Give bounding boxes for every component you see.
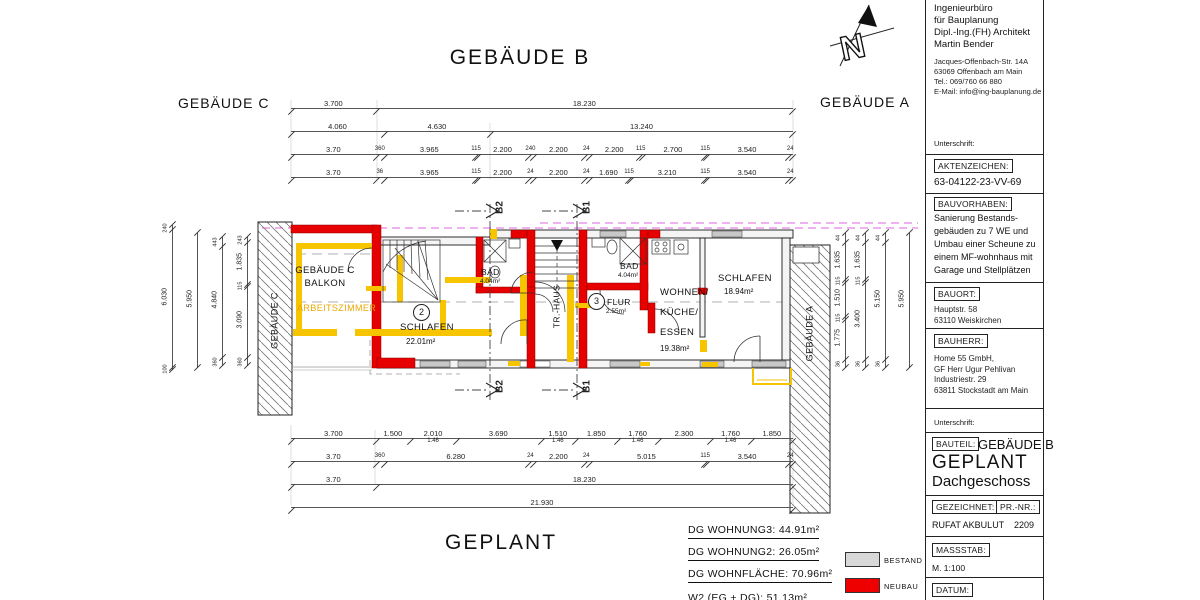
dim-segment: 360 bbox=[209, 358, 222, 366]
strip-label-gebaeude-c: GEBÄUDE C bbox=[269, 281, 282, 361]
divider bbox=[926, 577, 1043, 578]
dim-segment: 3.70 bbox=[291, 164, 376, 177]
text-line: für Bauplanung bbox=[934, 15, 1030, 27]
dim-segment: 6.280 bbox=[384, 448, 528, 461]
room-wohnen-line2: KÜCHE/ bbox=[660, 306, 698, 319]
divider bbox=[926, 536, 1043, 537]
text-line: Industriestr. 29 bbox=[934, 375, 1028, 386]
dim-row-bottom-3: 3.7018.230 bbox=[291, 471, 793, 485]
dim-segment: 3.540 bbox=[706, 164, 787, 177]
dim-segment: 5.950 bbox=[184, 233, 197, 368]
room-schlafen1: SCHLAFEN bbox=[718, 272, 772, 285]
balkon-label-line1: GEBÄUDE C bbox=[286, 264, 364, 277]
dim-segment: 24 bbox=[788, 141, 794, 154]
section-label-b2-top: B2 bbox=[495, 200, 506, 216]
dim-segment: 3.965 bbox=[384, 141, 475, 154]
divider bbox=[926, 495, 1043, 496]
bauvorhaben-text: Sanierung Bestands-gebäuden zu 7 WE undU… bbox=[934, 212, 1036, 277]
bauort-label: BAUORT: bbox=[934, 287, 980, 301]
dim-segment: 3.700 bbox=[291, 425, 376, 438]
dim-segment: 2.0101.46 bbox=[410, 425, 456, 438]
bauteil-value: GEBÄUDE B bbox=[978, 437, 1054, 452]
north-arrow-icon: N bbox=[830, 5, 894, 69]
room-schlafen1-area: 18.94m² bbox=[724, 287, 753, 296]
dim-row-bottom-4: 21.930 bbox=[291, 494, 793, 508]
massstab-label: MASSSTAB: bbox=[932, 543, 990, 557]
prnr-label: PR.-NR.: bbox=[996, 500, 1040, 514]
title-block: Ingenieurbürofür BauplanungDipl.-Ing.(FH… bbox=[925, 0, 1044, 600]
room-bad-right-area: 4.04m² bbox=[618, 272, 638, 279]
dim-segment: 3.70 bbox=[291, 448, 376, 461]
text-line: Garage und Stellplätzen bbox=[934, 264, 1036, 277]
text-line: Martin Bender bbox=[934, 39, 1030, 51]
room-wohnen-area: 19.38m² bbox=[660, 344, 689, 353]
dim-segment: 5.950 bbox=[896, 233, 909, 368]
room-trhaus: TR.-HAUS bbox=[551, 277, 564, 337]
dim-col-left-1: 2406.030100 bbox=[159, 225, 173, 370]
text-line: GF Herr Ugur Pehlivan bbox=[934, 365, 1028, 376]
signature-label: Unterschrift: bbox=[934, 139, 974, 148]
aktenzeichen-label: AKTENZEICHEN: bbox=[934, 159, 1013, 173]
text-line: gebäuden zu 7 WE und bbox=[934, 225, 1036, 238]
dim-segment: 360 bbox=[234, 358, 247, 366]
room-wohnen-line3: ESSEN bbox=[660, 326, 694, 339]
room-flur-area: 2.55m² bbox=[606, 308, 626, 315]
legend-neubau-swatch bbox=[845, 578, 880, 593]
dim-segment: 443 bbox=[209, 237, 222, 247]
text-line: 63069 Offenbach am Main bbox=[934, 67, 1041, 77]
dim-segment: 5.015 bbox=[589, 448, 704, 461]
dim-segment: 1.850 bbox=[575, 425, 617, 438]
dim-segment: 24 bbox=[788, 164, 794, 177]
dim-segment: 36 bbox=[872, 360, 885, 368]
dim-segment: 3.210 bbox=[630, 164, 703, 177]
gezeichnet-value: RUFAT AKBULUT bbox=[932, 520, 1004, 530]
stair-left-unit bbox=[383, 240, 440, 302]
dim-segment: 2.200 bbox=[589, 141, 639, 154]
level-name: Dachgeschoss bbox=[932, 473, 1030, 490]
caption-geplant: GEPLANT bbox=[445, 531, 557, 555]
dim-segment: 36 bbox=[376, 164, 384, 177]
dim-segment: 2.200 bbox=[533, 141, 583, 154]
dim-segment: 3.690 bbox=[456, 425, 540, 438]
drawing-sheet: N GEBÄUDE B GEBÄUDE C GEBÄUDE A GEPLANT … bbox=[0, 0, 1200, 600]
dim-segment: 44 bbox=[852, 233, 865, 243]
dim-row-bottom-2: 3.703606.280242.200245.0151153.54024 bbox=[291, 448, 793, 462]
dim-segment: 1.835 bbox=[234, 243, 247, 285]
text-line: Home 55 GmbH, bbox=[934, 354, 1028, 365]
bauherr-label: BAUHERR: bbox=[934, 334, 988, 348]
dim-row-top-3: 3.703603.9651152.2002402.200242.2001152.… bbox=[291, 141, 793, 155]
strip-label-gebaeude-a: GEBÄUDE A bbox=[804, 294, 817, 374]
dim-segment: 360 bbox=[376, 141, 384, 154]
dim-segment: 44 bbox=[832, 233, 845, 243]
room-bad-left-area: 4.04m² bbox=[480, 278, 500, 285]
dim-segment: 18.230 bbox=[376, 471, 793, 484]
text-line: Umbau einer Scheune zu bbox=[934, 238, 1036, 251]
room-schlafen2: SCHLAFEN bbox=[400, 321, 454, 334]
title-gebaeude-b: GEBÄUDE B bbox=[440, 46, 600, 70]
legend-neubau-label: NEUBAU bbox=[884, 582, 918, 591]
firm-address: Jacques-Offenbach-Str. 14A63069 Offenbac… bbox=[934, 57, 1041, 97]
dim-segment: 3.965 bbox=[384, 164, 475, 177]
plan-state: GEPLANT bbox=[932, 452, 1028, 474]
dim-segment: 2.200 bbox=[533, 448, 583, 461]
dim-segment: 1.5101.46 bbox=[541, 425, 576, 438]
text-line: 63811 Stockstadt am Main bbox=[934, 386, 1028, 397]
room-schlafen2-area: 22.01m² bbox=[406, 337, 435, 346]
section-label-b2-bottom: B2 bbox=[495, 379, 506, 395]
area-summary-item: W2 (EG + DG): 51.13m² bbox=[688, 592, 807, 600]
text-line: Dipl.-Ing.(FH) Architekt bbox=[934, 27, 1030, 39]
bauteil-label: BAUTEIL: bbox=[932, 437, 979, 451]
dim-segment: 5.150 bbox=[872, 243, 885, 360]
prnr-value: 2209 bbox=[1014, 520, 1034, 530]
dim-col-left-3: 4434.840360 bbox=[209, 237, 223, 366]
divider bbox=[926, 193, 1043, 194]
umbau-yellow bbox=[293, 229, 718, 367]
bauort-text: Hauptstr. 5863110 Weiskirchen bbox=[934, 305, 1001, 326]
dim-segment: 4.840 bbox=[209, 247, 222, 358]
dim-segment: 3.540 bbox=[706, 141, 787, 154]
dim-segment: 3.70 bbox=[291, 471, 376, 484]
dim-segment: 4.630 bbox=[384, 118, 490, 131]
dim-segment: 2.300 bbox=[658, 425, 711, 438]
dim-segment: 3.400 bbox=[852, 283, 865, 360]
dim-segment: 1.7601.46 bbox=[710, 425, 750, 438]
bauherr-text: Home 55 GmbH,GF Herr Ugur PehlivanIndust… bbox=[934, 354, 1028, 396]
dim-segment: 24 bbox=[788, 448, 794, 461]
dim-col-left-2: 5.950 bbox=[184, 233, 198, 368]
room-wohnen-line1: WOHNEN/ bbox=[660, 286, 709, 299]
dim-segment: 2.200 bbox=[477, 164, 527, 177]
arbeitszimmer-label: ARBEITSZIMMER bbox=[297, 303, 376, 313]
area-summary-item: DG WOHNUNG2: 26.05m² bbox=[688, 546, 819, 561]
divider bbox=[926, 154, 1043, 155]
dim-segment: 13.240 bbox=[490, 118, 793, 131]
text-line: Jacques-Offenbach-Str. 14A bbox=[934, 57, 1041, 67]
legend-bestand-label: BESTAND bbox=[884, 556, 922, 565]
dim-row-top-4: 3.70363.9651152.200242.200241.6901153.21… bbox=[291, 164, 793, 178]
signature2-label: Unterschrift: bbox=[934, 418, 974, 427]
stair-arrow bbox=[551, 240, 563, 251]
dim-segment: 2.200 bbox=[477, 141, 527, 154]
text-line: 63110 Weiskirchen bbox=[934, 316, 1001, 327]
aktenzeichen-value: 63-04122-23-VV-69 bbox=[934, 177, 1021, 188]
balkon-label-line2: BALKON bbox=[286, 277, 364, 290]
dim-segment: 2.700 bbox=[642, 141, 704, 154]
massstab-value: M. 1:100 bbox=[932, 563, 965, 573]
unit-number-2: 2 bbox=[413, 304, 430, 321]
dim-segment: 1.850 bbox=[751, 425, 793, 438]
divider bbox=[926, 328, 1043, 329]
firm-name: Ingenieurbürofür BauplanungDipl.-Ing.(FH… bbox=[934, 3, 1030, 51]
area-summary: DG WOHNUNG3: 44.91m²DG WOHNUNG2: 26.05m²… bbox=[688, 524, 838, 600]
area-summary-item: DG WOHNUNG3: 44.91m² bbox=[688, 524, 819, 539]
dim-col-right-3: 445.15036 bbox=[872, 233, 886, 368]
dim-segment: 360 bbox=[376, 448, 384, 461]
text-line: Ingenieurbüro bbox=[934, 3, 1030, 15]
text-line: E-Mail: info@ing-bauplanung.de bbox=[934, 87, 1041, 97]
dim-row-bottom-1: 3.7001.5002.0101.463.6901.5101.461.8501.… bbox=[291, 425, 793, 439]
dim-segment: 36 bbox=[852, 360, 865, 368]
dim-segment: 1.500 bbox=[376, 425, 410, 438]
dim-col-right-1: 441.6351151.5101151.77536 bbox=[832, 233, 846, 368]
unit-number-3: 3 bbox=[588, 293, 605, 310]
dim-segment: 4.060 bbox=[291, 118, 384, 131]
mid-dash-lines bbox=[292, 254, 786, 374]
text-line: Hauptstr. 58 bbox=[934, 305, 1001, 316]
section-label-b1-bottom: B1 bbox=[582, 379, 593, 395]
dim-col-right-4: 5.950 bbox=[896, 233, 910, 368]
dim-segment: 3.540 bbox=[706, 448, 787, 461]
label-gebaeude-c: GEBÄUDE C bbox=[178, 95, 269, 111]
dim-segment: 1.690 bbox=[589, 164, 628, 177]
divider bbox=[926, 282, 1043, 283]
dim-segment: 3.700 bbox=[291, 95, 376, 108]
dim-segment: 21.930 bbox=[291, 494, 793, 507]
legend-bestand-swatch bbox=[845, 552, 880, 567]
divider bbox=[926, 408, 1043, 409]
area-summary-item: DG WOHNFLÄCHE: 70.96m² bbox=[688, 568, 832, 583]
dim-segment: 6.030 bbox=[159, 230, 172, 367]
label-gebaeude-a: GEBÄUDE A bbox=[820, 94, 910, 110]
dim-segment: 18.230 bbox=[376, 95, 793, 108]
dim-row-top-2: 4.0604.63013.240 bbox=[291, 118, 793, 132]
bauvorhaben-label: BAUVORHABEN: bbox=[934, 197, 1012, 211]
dim-segment: 100 bbox=[159, 368, 172, 370]
dim-col-right-2: 441.6351153.40036 bbox=[852, 233, 866, 368]
text-line: einem MF-wohnhaus mit bbox=[934, 251, 1036, 264]
dim-col-left-4: 2431.8351153.090360 bbox=[234, 237, 248, 366]
dim-segment: 2.200 bbox=[533, 164, 583, 177]
dim-segment: 3.70 bbox=[291, 141, 376, 154]
datum-label: DATUM: bbox=[932, 583, 973, 597]
dim-segment: 36 bbox=[832, 360, 845, 368]
dim-segment: 1.775 bbox=[832, 320, 845, 360]
dim-segment: 1.7601.46 bbox=[617, 425, 657, 438]
divider bbox=[926, 432, 1043, 433]
section-label-b1-top: B1 bbox=[582, 200, 593, 216]
text-line: Tel.: 069/760 66 880 bbox=[934, 77, 1041, 87]
gezeichnet-label: GEZEICHNET: bbox=[932, 500, 998, 514]
dim-segment: 3.090 bbox=[234, 287, 247, 358]
dim-segment: 44 bbox=[872, 233, 885, 243]
text-line: Sanierung Bestands- bbox=[934, 212, 1036, 225]
dim-row-top-1: 3.70018.230 bbox=[291, 95, 793, 109]
umbau-yellow-outline bbox=[753, 368, 791, 384]
